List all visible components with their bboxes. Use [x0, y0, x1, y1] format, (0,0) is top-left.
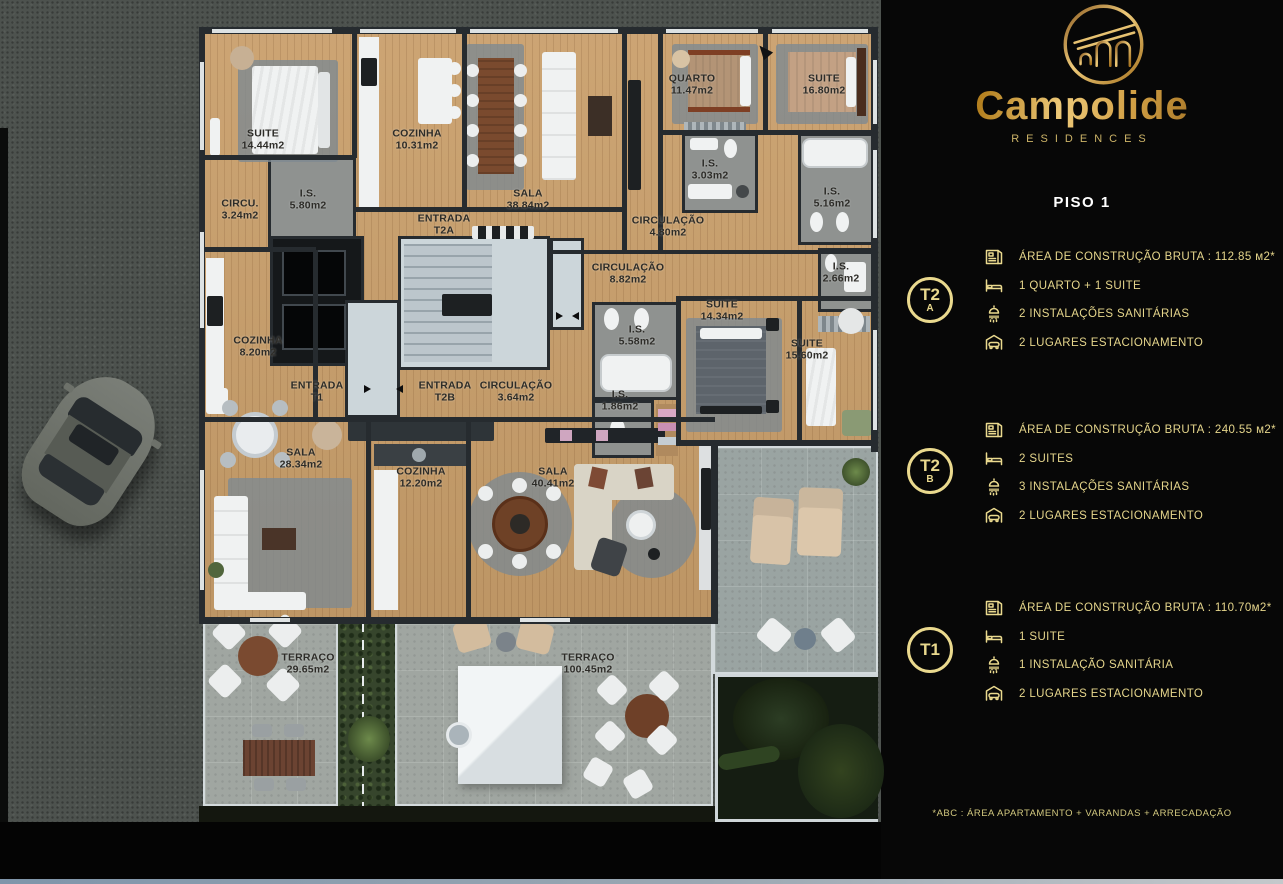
spec-text: 1 SUITE: [1019, 630, 1065, 643]
room-label: I.S.3.03m2: [692, 158, 729, 181]
badge-sublabel: A: [926, 304, 933, 314]
bed-icon: [984, 275, 1004, 295]
spec-row: 3 INSTALAÇÕES SANITÁRIAS: [984, 477, 1276, 496]
area-icon: [984, 247, 1004, 267]
brand-subtitle: RESIDENCES: [881, 133, 1283, 145]
unit-badge-t2a: T2 A: [907, 277, 953, 323]
parking-icon: [984, 683, 1004, 703]
room-label: SUITE15.60m2: [786, 338, 829, 361]
spec-text: 2 INSTALAÇÕES SANITÁRIAS: [1019, 307, 1189, 320]
room-label: SALA40.41m2: [532, 466, 575, 489]
spec-row: ÁREA DE CONSTRUÇÃO BRUTA : 240.55 м2*: [984, 420, 1276, 439]
spec-row: 2 INSTALAÇÕES SANITÁRIAS: [984, 304, 1275, 323]
page-title: PISO 1: [881, 194, 1283, 211]
room-label: COZINHA8.20m2: [233, 335, 282, 358]
unit-badge-t2b: T2 B: [907, 448, 953, 494]
bottom-edge-line: [0, 879, 1283, 884]
spec-row: 1 INSTALAÇÃO SANITÁRIA: [984, 655, 1272, 674]
room-label: QUARTO11.47m2: [669, 73, 716, 96]
spec-text: 2 LUGARES ESTACIONAMENTO: [1019, 509, 1203, 522]
bed-icon: [984, 448, 1004, 468]
room-label: CIRCU.3.24m2: [221, 198, 258, 221]
unit-badge-t1: T1: [907, 627, 953, 673]
area-icon: [984, 598, 1004, 618]
info-panel: Campolide RESIDENCES PISO 1 T2 A ÁREA DE…: [881, 0, 1283, 884]
spec-row: 1 QUARTO + 1 SUITE: [984, 276, 1275, 295]
room-label: SALA28.34m2: [280, 447, 323, 470]
spec-list: ÁREA DE CONSTRUÇÃO BRUTA : 110.70м2* 1 S…: [984, 598, 1272, 712]
room-label: COZINHA10.31m2: [392, 128, 441, 151]
brand-logo-icon: [1061, 2, 1146, 87]
brand-name: Campolide: [881, 84, 1283, 129]
spec-list: ÁREA DE CONSTRUÇÃO BRUTA : 112.85 м2* 1 …: [984, 247, 1275, 361]
spec-text: 1 INSTALAÇÃO SANITÁRIA: [1019, 658, 1173, 671]
room-label: I.S.5.80m2: [290, 188, 327, 211]
room-label: I.S.5.58m2: [619, 324, 656, 347]
badge-label: T2: [920, 286, 940, 303]
room-label: ENTRADAT2A: [418, 213, 471, 236]
room-label: TERRAÇO100.45m2: [561, 652, 614, 675]
spec-row: 2 LUGARES ESTACIONAMENTO: [984, 506, 1276, 525]
spec-row: 2 SUITES: [984, 449, 1276, 468]
parking-icon: [984, 505, 1004, 525]
footnote: *ABC : ÁREA APARTAMENTO + VARANDAS + ARR…: [881, 808, 1283, 819]
badge-label: T2: [920, 457, 940, 474]
room-label: SUITE16.80m2: [803, 73, 846, 96]
spec-row: 2 LUGARES ESTACIONAMENTO: [984, 333, 1275, 352]
spec-text: 3 INSTALAÇÕES SANITÁRIAS: [1019, 480, 1189, 493]
spec-text: ÁREA DE CONSTRUÇÃO BRUTA : 240.55 м2*: [1019, 423, 1276, 436]
room-label: I.S.1.86m2: [602, 389, 639, 412]
badge-label: T1: [920, 641, 940, 658]
spec-text: 2 LUGARES ESTACIONAMENTO: [1019, 687, 1203, 700]
room-label: ENTRADAT2B: [419, 380, 472, 403]
room-label: I.S.5.16m2: [814, 186, 851, 209]
room-label: COZINHA12.20m2: [396, 466, 445, 489]
bed-icon: [984, 626, 1004, 646]
spec-list: ÁREA DE CONSTRUÇÃO BRUTA : 240.55 м2* 2 …: [984, 420, 1276, 534]
spec-text: ÁREA DE CONSTRUÇÃO BRUTA : 112.85 м2*: [1019, 250, 1275, 263]
spec-text: 2 LUGARES ESTACIONAMENTO: [1019, 336, 1203, 349]
floor-plan-labels: SUITE14.44m2COZINHA10.31m2SALA38.84m2QUA…: [0, 0, 881, 884]
badge-sublabel: B: [926, 475, 933, 485]
spec-row: ÁREA DE CONSTRUÇÃO BRUTA : 110.70м2*: [984, 598, 1272, 617]
spec-text: ÁREA DE CONSTRUÇÃO BRUTA : 110.70м2*: [1019, 601, 1272, 614]
spec-row: 2 LUGARES ESTACIONAMENTO: [984, 684, 1272, 703]
room-label: ENTRADAT1: [291, 380, 344, 403]
parking-icon: [984, 332, 1004, 352]
room-label: SUITE14.44m2: [242, 128, 285, 151]
spec-row: ÁREA DE CONSTRUÇÃO BRUTA : 112.85 м2*: [984, 247, 1275, 266]
shower-icon: [984, 477, 1004, 497]
area-icon: [984, 420, 1004, 440]
room-label: CIRCULAÇÃO3.64m2: [480, 380, 553, 403]
room-label: SALA38.84m2: [507, 188, 550, 211]
spec-row: 1 SUITE: [984, 627, 1272, 646]
room-label: TERRAÇO29.65m2: [281, 652, 334, 675]
spec-text: 1 QUARTO + 1 SUITE: [1019, 279, 1141, 292]
shower-icon: [984, 655, 1004, 675]
room-label: I.S.2.66m2: [823, 261, 860, 284]
room-label: CIRCULAÇÃO8.82m2: [592, 262, 665, 285]
floor-plan-scene: SUITE14.44m2COZINHA10.31m2SALA38.84m2QUA…: [0, 0, 881, 884]
page: SUITE14.44m2COZINHA10.31m2SALA38.84m2QUA…: [0, 0, 1283, 884]
room-label: SUITE14.34m2: [701, 299, 744, 322]
shower-icon: [984, 304, 1004, 324]
room-label: CIRCULAÇÃO4.80m2: [632, 215, 705, 238]
spec-text: 2 SUITES: [1019, 452, 1073, 465]
